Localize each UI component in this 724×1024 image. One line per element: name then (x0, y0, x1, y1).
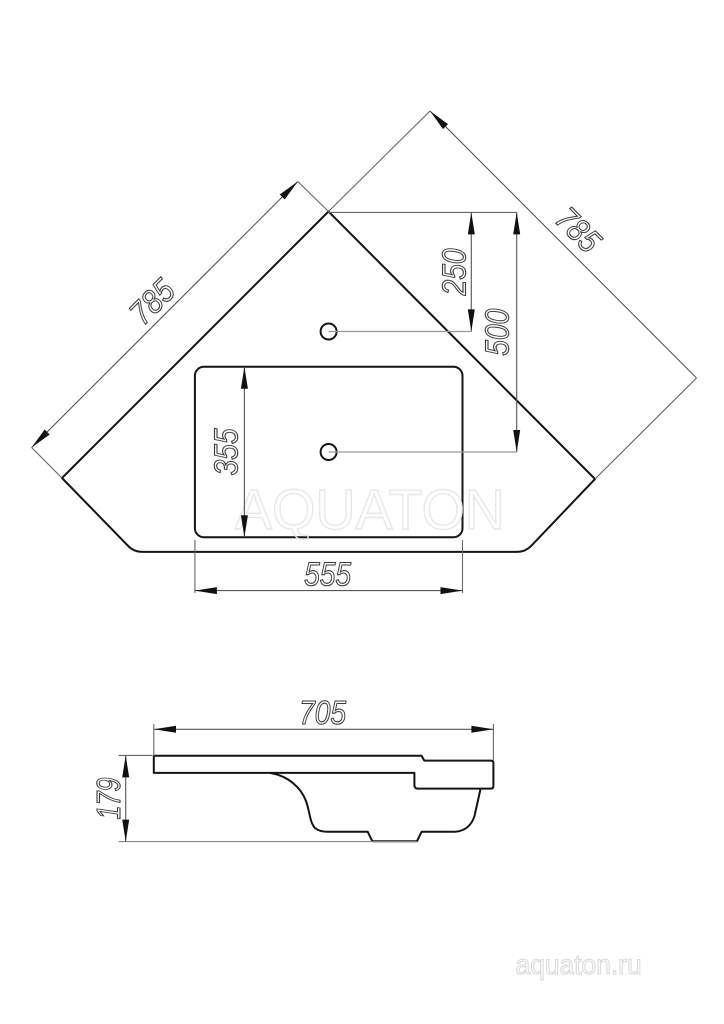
svg-text:179: 179 (90, 778, 127, 820)
svg-text:355: 355 (208, 428, 245, 476)
svg-text:555: 555 (304, 556, 352, 593)
svg-text:250: 250 (435, 248, 472, 296)
svg-text:705: 705 (299, 694, 347, 731)
svg-text:AQUATON: AQUATON (235, 478, 505, 542)
svg-text:500: 500 (478, 308, 515, 356)
svg-text:aquaton.ru: aquaton.ru (516, 949, 642, 980)
